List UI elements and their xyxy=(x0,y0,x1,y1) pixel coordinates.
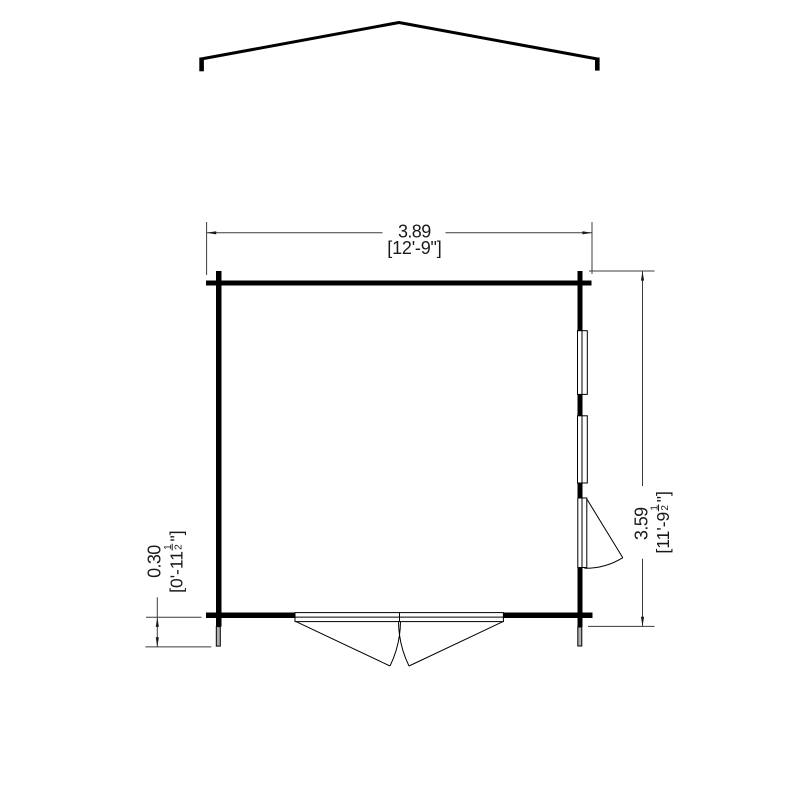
svg-text:0.30: 0.30 xyxy=(144,545,164,578)
svg-text:2: 2 xyxy=(660,505,671,511)
svg-text:3.59: 3.59 xyxy=(631,507,651,540)
svg-text:"]: "] xyxy=(167,530,187,541)
svg-text:[12'-9"]: [12'-9"] xyxy=(387,238,441,258)
svg-text:[11'-9: [11'-9 xyxy=(653,512,673,554)
svg-text:[0'-11: [0'-11 xyxy=(167,551,187,593)
svg-text:2: 2 xyxy=(174,544,185,550)
svg-text:"]: "] xyxy=(653,491,673,502)
